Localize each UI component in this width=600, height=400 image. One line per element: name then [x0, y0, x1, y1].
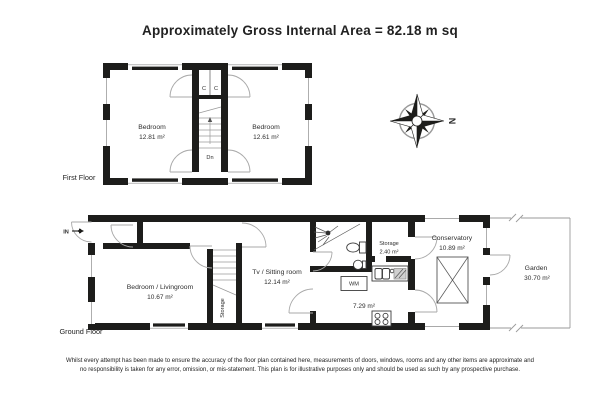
toilet-icon — [347, 242, 366, 253]
tv-sitting-room-area: 12.14 m² — [264, 279, 290, 286]
bedroom-right-area: 12.61 m² — [253, 134, 279, 141]
ground-stairs-icon — [213, 250, 236, 295]
garden-name: Garden — [525, 265, 548, 272]
understairs-storage-label: Storage — [220, 298, 226, 318]
disclaimer-line-1: Whilst every attempt has been made to en… — [40, 357, 560, 366]
garden-area: 30.70 m² — [524, 275, 550, 282]
bedroom-livingroom-name: Bedroom / Livingroom — [127, 284, 194, 291]
bedroom-right-name: Bedroom — [252, 124, 280, 131]
kitchen-fixtures — [341, 266, 408, 326]
floorplan-page: Approximately Gross Internal Area = 82.1… — [0, 0, 600, 400]
sink-icon — [353, 260, 366, 269]
conservatory-name: Conservatory — [432, 235, 473, 242]
first-floor-label: First Floor — [63, 173, 96, 182]
garden-outline — [490, 214, 570, 332]
stove-icon — [372, 311, 391, 326]
closet-right-label: C — [214, 86, 218, 92]
kitchen-area: 7.29 m² — [353, 303, 376, 310]
bedroom-left-name: Bedroom — [138, 124, 166, 131]
compass-rose-icon: N — [390, 94, 457, 148]
bedroom-left-area: 12.81 m² — [139, 134, 165, 141]
stairs-icon — [199, 107, 221, 148]
entrance-label: IN — [63, 230, 69, 236]
ground-floor-plan: IN Bedroom / Livingroom 10.67 m² Tv / Si… — [60, 214, 571, 336]
storage-room-area: 2.40 m² — [380, 250, 399, 256]
entrance-arrow-icon — [72, 228, 84, 233]
conservatory-area: 10.89 m² — [439, 245, 465, 252]
bathroom-fixtures — [314, 224, 366, 269]
tv-sitting-room-name: Tv / Sitting room — [252, 269, 302, 276]
compass-north-label: N — [447, 118, 457, 125]
floor-plan-canvas: Bedroom 12.81 m² Bedroom 12.61 m² C C Dn… — [0, 0, 600, 400]
shower-icon — [314, 226, 338, 245]
bedroom-livingroom-area: 10.67 m² — [147, 294, 173, 301]
storage-room-name: Storage — [379, 241, 399, 247]
first-floor-plan: Bedroom 12.81 m² Bedroom 12.61 m² C C Dn… — [63, 63, 312, 185]
ground-floor-label: Ground Floor — [60, 327, 104, 336]
conservatory-rooflight-icon — [437, 257, 468, 303]
drainer-hatch — [394, 269, 406, 280]
disclaimer-line-2: no responsibility is taken for any error… — [40, 366, 560, 375]
closet-left-label: C — [202, 86, 206, 92]
stairs-down-label: Dn — [206, 155, 213, 161]
washing-machine-label: WM — [349, 282, 359, 288]
